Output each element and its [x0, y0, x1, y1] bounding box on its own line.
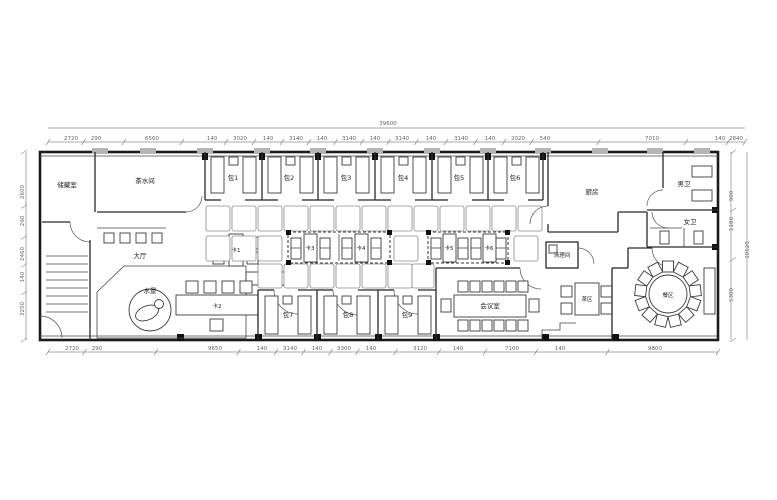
room-label-k6: 卡6 [485, 244, 495, 252]
dim-label: 5300 [729, 288, 735, 302]
dim-label: 540 [540, 136, 551, 142]
dim-label: 290 [92, 346, 103, 352]
booth-group-1 [286, 230, 392, 265]
room-label-p2: 包2 [284, 173, 295, 182]
dim-label: 3140 [342, 136, 356, 142]
dim-label: 3140 [395, 136, 409, 142]
dim-total-right: 10520 [745, 241, 751, 259]
dim-label: 3020 [233, 136, 247, 142]
dim-label: 2020 [511, 136, 525, 142]
floor-plan-svg: 储藏室 茶水间 大厅 水景 包1 包2 包3 包4 包5 包6 包7 包8 包9… [0, 0, 777, 500]
room-label-p1: 包1 [228, 173, 239, 182]
dim-label: 140 [426, 136, 437, 142]
dim-label: 900 [729, 190, 735, 201]
tea-room [97, 196, 202, 212]
booth-group-2 [426, 230, 510, 265]
dim-label: 3120 [413, 346, 427, 352]
dim-label: 2720 [65, 346, 79, 352]
room-label-k4: 卡4 [357, 244, 367, 252]
dim-label: 3250 [20, 302, 26, 316]
dim-label: 7100 [505, 346, 519, 352]
staircase [40, 240, 90, 340]
dim-label: 2840 [729, 136, 743, 142]
dim-label: 2720 [64, 136, 78, 142]
lobby [97, 228, 166, 243]
dim-label: 290 [91, 136, 102, 142]
room-label-dining: 餐区 [662, 291, 674, 299]
dim-label: 140 [453, 346, 464, 352]
dim-label: 140 [555, 346, 566, 352]
dim-label: 2460 [20, 247, 26, 261]
room-label-p5: 包5 [454, 173, 465, 182]
dim-label: 2600 [20, 185, 26, 199]
meeting-room [436, 268, 541, 331]
room-label-p6: 包6 [510, 173, 521, 182]
dim-label: 290 [20, 215, 26, 226]
dim-label: 3140 [289, 136, 303, 142]
dim-label: 140 [20, 271, 26, 282]
dim-label: 140 [715, 136, 726, 142]
room-label-k5: 卡5 [445, 244, 455, 252]
room-label-cleaning: 清理间 [554, 251, 571, 259]
dim-label: 9800 [648, 346, 662, 352]
dim-label: 140 [485, 136, 496, 142]
floor-plan-page: 储藏室 茶水间 大厅 水景 包1 包2 包3 包4 包5 包6 包7 包8 包9… [0, 0, 777, 500]
dim-label: 3140 [454, 136, 468, 142]
room-label-p4: 包4 [398, 173, 409, 182]
room-label-tea-area: 茶区 [581, 295, 593, 303]
room-label-kitchen: 厨房 [586, 187, 599, 196]
dim-total-top: 39600 [379, 121, 397, 127]
room-label-water: 水景 [144, 286, 158, 295]
dim-label: 3140 [283, 346, 297, 352]
storage-room [42, 152, 95, 242]
dim-label: 140 [263, 136, 274, 142]
room-label-womens-wc: 女卫 [684, 217, 698, 226]
room-label-p9: 包9 [402, 310, 413, 319]
room-label-p3: 包3 [341, 173, 352, 182]
dim-label: 140 [207, 136, 218, 142]
room-label-k1: 卡1 [232, 246, 241, 254]
dim-label: 9650 [208, 346, 222, 352]
womens-wc [647, 212, 718, 247]
room-label-meeting: 会议室 [480, 301, 500, 310]
dim-label: 1180 [729, 217, 735, 231]
dim-label: 140 [317, 136, 328, 142]
room-label-mens-wc: 男卫 [678, 180, 692, 188]
room-label-k3: 卡3 [306, 244, 316, 252]
dim-label: 140 [257, 346, 268, 352]
room-label-tea: 茶水间 [135, 176, 155, 185]
dim-label: 7010 [645, 136, 659, 142]
dim-label: 140 [366, 346, 377, 352]
room-label-p7: 包7 [283, 310, 294, 319]
dim-label: 6560 [145, 136, 159, 142]
room-label-hall: 大厅 [134, 251, 148, 260]
dim-label: 140 [312, 346, 323, 352]
room-label-k2: 卡2 [213, 302, 222, 310]
room-label-storage: 储藏室 [57, 180, 77, 189]
dim-label: 3300 [337, 346, 351, 352]
room-label-p8: 包8 [343, 310, 354, 319]
dim-label: 140 [370, 136, 381, 142]
